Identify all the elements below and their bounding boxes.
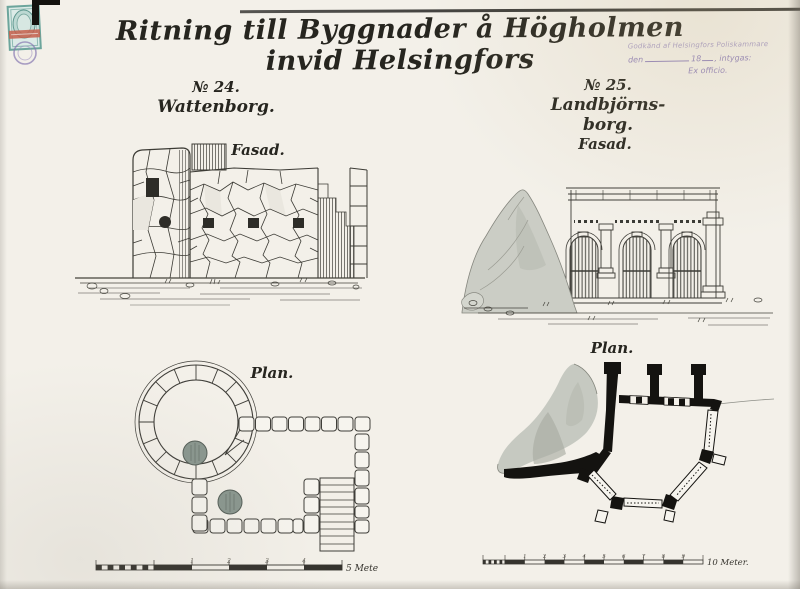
approval-line2: den18, intygas: — [628, 52, 794, 65]
arched-openings — [566, 232, 705, 298]
ground — [75, 278, 365, 305]
terrain-line — [718, 399, 774, 404]
plan-label-left: Plan. — [222, 364, 322, 382]
drawing-sheet: Ritning till Byggnader å Högholmen invid… — [0, 0, 800, 589]
wall-window — [248, 218, 259, 228]
courtyard-walls — [192, 417, 370, 533]
scale-tick: 7 — [642, 554, 646, 560]
scale-tick: 3 — [265, 558, 269, 565]
landbjornsborg-scale-bar: 1 2 3 4 5 6 7 8 9 10 Meter. — [475, 550, 775, 574]
fasad-label-right: Fasad. — [555, 135, 655, 153]
drawing-title: Ritning till Byggnader å Högholmen invid… — [88, 12, 712, 78]
landbjornsborg-facade-drawing — [458, 150, 778, 335]
section-header-no25: № 25. Landbjörns-borg. — [527, 76, 689, 135]
scale-tick: 2 — [542, 554, 547, 560]
approval-line1: Godkänd af Helsingfors Poliskammare — [628, 40, 794, 51]
revenue-stamp — [5, 3, 51, 73]
pilasters — [597, 212, 725, 298]
scale-tick: 4 — [301, 558, 306, 565]
wall-window — [293, 218, 304, 228]
landbjornsborg-plan-drawing — [478, 352, 780, 557]
staircase — [304, 478, 354, 551]
rock-mass — [498, 364, 598, 473]
scale-unit-label: 10 Meter. — [707, 558, 749, 568]
wall-window — [203, 218, 214, 228]
approval-blank-date — [645, 53, 689, 62]
scale-tick: 1 — [190, 558, 194, 565]
scale-tick: 3 — [563, 554, 567, 560]
fasad-label-left: Fasad. — [208, 141, 308, 159]
scale-unit-label: 5 Meter. — [346, 564, 378, 574]
plan-label-right: Plan. — [562, 339, 662, 357]
scale-tick: 4 — [581, 554, 586, 560]
scan-corner-mark-top — [32, 0, 60, 5]
section-number: № 25. — [527, 76, 689, 94]
approval-stamp-annotation: Godkänd af Helsingfors Poliskammare den1… — [628, 40, 795, 77]
scale-tick: 9 — [681, 554, 685, 560]
scale-bar-graphic — [483, 555, 703, 564]
section-header-no24: № 24. Wattenborg. — [138, 78, 294, 117]
section-name: Wattenborg. — [138, 97, 294, 117]
approval-year: 18 — [691, 54, 701, 63]
rock-outcrop — [462, 190, 577, 313]
approval-den: den — [628, 55, 643, 64]
scale-tick: 8 — [662, 554, 666, 560]
porthole — [159, 216, 171, 228]
wattenborg-plan-drawing — [98, 358, 390, 560]
stone-wall — [190, 168, 318, 278]
section-number: № 24. — [138, 78, 294, 96]
section-name: Landbjörns-borg. — [527, 95, 689, 135]
buttress-stubs — [595, 454, 726, 523]
wattenborg-facade-drawing — [70, 138, 370, 316]
approval-intygas: , intygas: — [714, 53, 751, 63]
stepped-bastion — [318, 168, 367, 278]
approval-blank-year — [702, 53, 713, 61]
scale-tick: 6 — [622, 554, 626, 560]
approval-line3: Ex officio. — [688, 65, 794, 76]
scale-tick: 5 — [602, 554, 606, 560]
scale-tick: 2 — [226, 558, 231, 565]
wattenborg-scale-bar: 1 2 3 4 5 Meter. — [88, 556, 378, 580]
scale-tick: 1 — [523, 554, 527, 560]
tower-window — [146, 178, 159, 197]
